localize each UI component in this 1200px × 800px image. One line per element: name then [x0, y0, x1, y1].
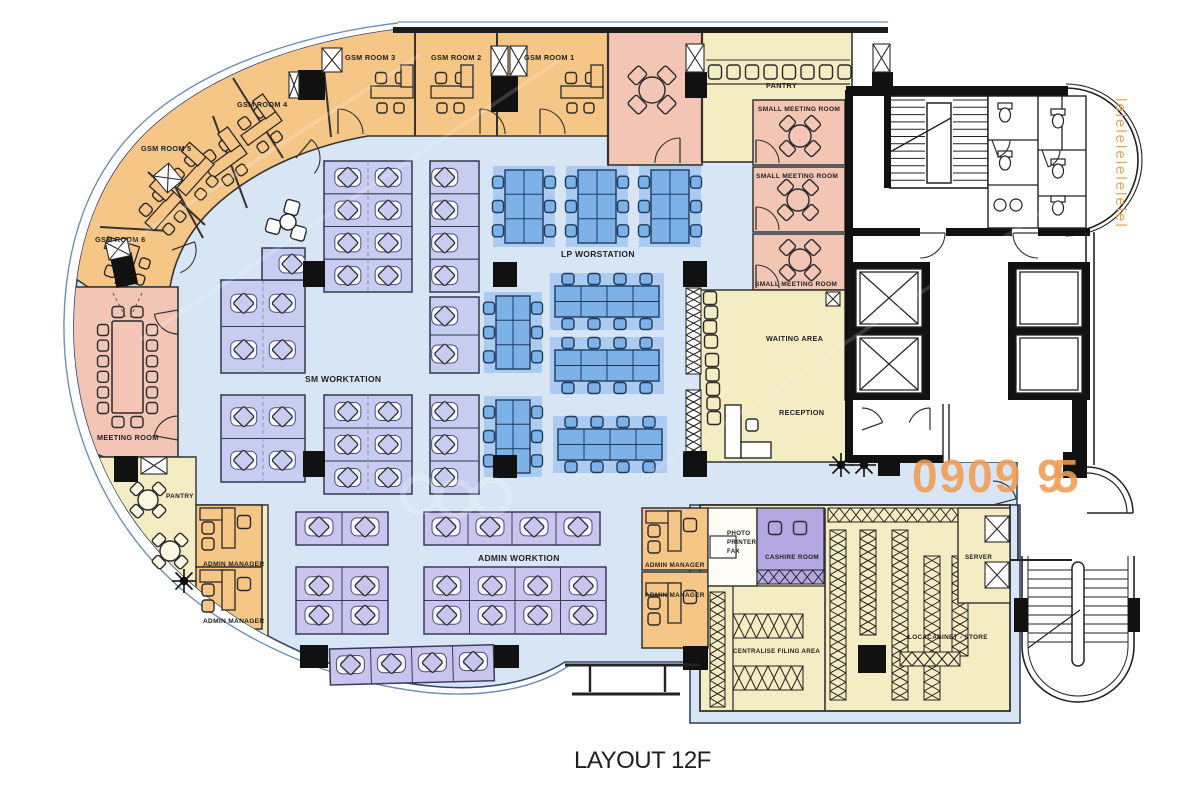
- svg-text:5: 5: [1053, 450, 1079, 502]
- svg-text:SMALL MEETING ROOM: SMALL MEETING ROOM: [755, 281, 837, 288]
- svg-text:ADMIN MANAGER: ADMIN MANAGER: [645, 562, 705, 569]
- svg-text:ADMIN WORKTION: ADMIN WORKTION: [478, 553, 560, 563]
- svg-text:PANTRY: PANTRY: [166, 493, 194, 500]
- svg-text:PHOTO: PHOTO: [727, 530, 750, 537]
- svg-text:SERVER: SERVER: [965, 554, 992, 561]
- svg-text:LOCACABINET - STORE: LOCACABINET - STORE: [908, 634, 988, 641]
- svg-text:MEETING ROOM: MEETING ROOM: [97, 433, 159, 442]
- svg-text:SM WORKTATION: SM WORKTATION: [305, 374, 381, 384]
- svg-text:GSM ROOM 2: GSM ROOM 2: [431, 53, 481, 62]
- svg-text:ADMIN MANAGER: ADMIN MANAGER: [203, 618, 264, 625]
- svg-text:LP WORSTATION: LP WORSTATION: [561, 249, 635, 259]
- svg-text:FAX: FAX: [727, 548, 741, 555]
- svg-text:ADMIN MANAGER: ADMIN MANAGER: [645, 592, 705, 599]
- svg-text:RECEPTION: RECEPTION: [779, 408, 824, 417]
- svg-text:PRINTER: PRINTER: [727, 539, 756, 546]
- svg-text:LAYOUT 12F: LAYOUT 12F: [574, 747, 711, 774]
- svg-text:PANTRY: PANTRY: [766, 81, 797, 90]
- svg-text:GSM ROOM 1: GSM ROOM 1: [524, 53, 574, 62]
- svg-text:lelelelelelelelel: lelelelelelelelel: [1112, 98, 1129, 229]
- svg-text:CENTRALISE FILING AREA: CENTRALISE FILING AREA: [733, 648, 820, 655]
- svg-text:SMALL MEETING ROOM: SMALL MEETING ROOM: [758, 106, 840, 113]
- svg-text:GSM ROOM 4: GSM ROOM 4: [237, 100, 288, 109]
- svg-text:ADMIN MANAGER: ADMIN MANAGER: [203, 561, 264, 568]
- svg-text:GSM ROOM 5: GSM ROOM 5: [141, 144, 191, 153]
- svg-text:0909 9: 0909 9: [912, 450, 1065, 502]
- svg-text:GSM ROOM 3: GSM ROOM 3: [345, 53, 395, 62]
- svg-text:CASHIRE ROOM: CASHIRE ROOM: [765, 554, 819, 561]
- svg-text:WAITING AREA: WAITING AREA: [766, 334, 824, 343]
- svg-text:SMALL MEETING ROOM: SMALL MEETING ROOM: [756, 173, 838, 180]
